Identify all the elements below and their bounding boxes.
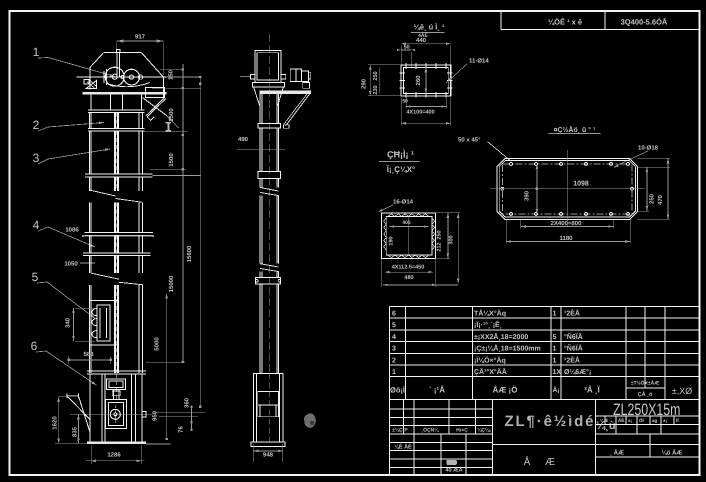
svg-text:360: 360 — [184, 397, 191, 408]
svg-text:±¼Ç¡P: ±¼Ç¡P — [392, 428, 408, 434]
svg-text:¹2ÈÅ: ¹2ÈÅ — [564, 355, 580, 364]
svg-text:ZL¶·ê½ìdé: ZL¶·ê½ìdé — [505, 413, 594, 430]
svg-text:16-Ø14: 16-Ø14 — [393, 199, 414, 206]
svg-text:¼È ÅÈ: ¼È ÅÈ — [394, 444, 412, 451]
svg-text:50 x 45°: 50 x 45° — [458, 137, 481, 144]
svg-text:±¡XX2Å¸18=2000: ±¡XX2Å¸18=2000 — [474, 332, 528, 341]
svg-text:TÅ¼X°Äq: TÅ¼X°Äq — [474, 309, 506, 318]
svg-text:10-Ø18: 10-Ø18 — [638, 145, 659, 152]
svg-text:Øö¡Ì: Øö¡Ì — [390, 386, 405, 395]
svg-text:3Q400-5.6ÓÅ: 3Q400-5.6ÓÅ — [621, 18, 668, 27]
svg-text:¡Ï¼Ö×°Äq: ¡Ï¼Ö×°Äq — [474, 356, 506, 364]
svg-text:¼Æ: ¼Æ — [600, 418, 609, 423]
svg-text:²Å ¸Ï: ²Å ¸Ï — [584, 385, 600, 395]
svg-text:1500: 1500 — [168, 153, 175, 167]
svg-text:6: 6 — [392, 311, 396, 318]
svg-text:1X: 1X — [553, 369, 562, 376]
svg-text:1098: 1098 — [573, 181, 589, 188]
svg-text:250: 250 — [649, 193, 656, 204]
svg-text:ÇÅ ¸ö: ÇÅ ¸ö — [638, 391, 653, 398]
svg-text:Å: Å — [524, 456, 531, 468]
svg-text:250: 250 — [373, 71, 379, 80]
svg-text:Ïf: Ïf — [675, 418, 679, 423]
svg-text:405: 405 — [402, 220, 411, 226]
svg-text:76: 76 — [178, 426, 185, 433]
svg-text:11-Ø14: 11-Ø14 — [469, 58, 489, 65]
svg-text:ÅÆ ¡Ö: ÅÆ ¡Ö — [493, 385, 518, 395]
svg-text:5: 5 — [32, 270, 39, 284]
svg-text:1: 1 — [553, 346, 557, 353]
svg-text:¡Ç±¡¼Å¸18=1500mm: ¡Ç±¡¼Å¸18=1500mm — [474, 344, 541, 353]
svg-text:ag: ag — [652, 418, 658, 423]
svg-text:Ï¡¸Ç¼X°: Ï¡¸Ç¼X° — [386, 165, 416, 174]
svg-text:¤Ç½Åö¸ û ° ¹: ¤Ç½Åö¸ û ° ¹ — [554, 125, 596, 134]
svg-text:490: 490 — [238, 136, 249, 143]
svg-text:190: 190 — [389, 236, 395, 245]
svg-text:6: 6 — [31, 339, 38, 353]
svg-text:2: 2 — [33, 118, 40, 132]
svg-text:°Ñ6ÏÅ: °Ñ6ÏÅ — [564, 332, 583, 341]
svg-text:40 ÆÅ: 40 ÆÅ — [445, 466, 462, 473]
svg-text:1086: 1086 — [65, 227, 79, 234]
svg-text:±T½ÖX±ÅÆ: ±T½ÖX±ÅÆ — [631, 380, 660, 387]
svg-text:290: 290 — [361, 78, 368, 89]
svg-text:15600: 15600 — [186, 245, 193, 262]
svg-text:±¡: ±¡ — [663, 418, 667, 423]
svg-text:ÇĦ¡Ì¡ ¹: ÇĦ¡Ì¡ ¹ — [387, 150, 414, 160]
svg-text:¼Ç¼¡: ¼Ç¼¡ — [477, 428, 491, 434]
svg-text:°Ñ6ÏÅ: °Ñ6ÏÅ — [564, 344, 583, 353]
svg-text:230: 230 — [373, 85, 379, 94]
svg-text:¼ÖÊ ¹ x ê: ¼ÖÊ ¹ x ê — [548, 18, 582, 27]
svg-text:15000: 15000 — [168, 275, 175, 292]
svg-text:5: 5 — [553, 334, 557, 341]
svg-text:250: 250 — [437, 230, 443, 239]
svg-text:1: 1 — [553, 357, 557, 364]
svg-text:1: 1 — [553, 311, 557, 318]
svg-text:¼ê¸ ú Ì¸ ¹: ¼ê¸ ú Ì¸ ¹ — [414, 23, 445, 32]
svg-text:¸ ÅÆ: ¸ ÅÆ — [610, 449, 624, 457]
svg-text:3: 3 — [33, 151, 40, 165]
svg-text:470: 470 — [657, 194, 664, 205]
svg-text:1286: 1286 — [107, 451, 121, 458]
svg-text:1: 1 — [392, 369, 396, 376]
svg-text:5: 5 — [392, 322, 396, 329]
svg-text:835: 835 — [72, 426, 79, 437]
svg-text:Ƕ×Ç: Ƕ×Ç — [456, 428, 468, 434]
svg-text:ÇÅ¹°X°ÄÅ: ÇÅ¹°X°ÄÅ — [474, 367, 507, 376]
svg-text:±,XØ: ±,XØ — [672, 386, 692, 396]
svg-text:4: 4 — [33, 218, 40, 232]
svg-text:340: 340 — [65, 317, 72, 328]
svg-text:4X100=400: 4X100=400 — [406, 109, 434, 115]
svg-text:1: 1 — [33, 45, 40, 59]
svg-text:2: 2 — [392, 357, 396, 364]
svg-text:440: 440 — [416, 37, 427, 44]
svg-text:Ø¼6Æ°¡: Ø¼6Æ°¡ — [564, 368, 591, 376]
svg-text:4: 4 — [392, 334, 396, 341]
svg-text:¹2ÈÅ: ¹2ÈÅ — [564, 309, 580, 318]
svg-text:948: 948 — [263, 451, 274, 458]
svg-text:150: 150 — [168, 69, 175, 80]
svg-text:´ ¡¹Å: ´ ¡¹Å — [429, 385, 445, 395]
svg-text:5000: 5000 — [154, 337, 161, 351]
svg-text:¸ÒÇǸ¼: ¸ÒÇǸ¼ — [422, 427, 440, 434]
svg-text:260: 260 — [415, 75, 422, 86]
svg-text:3: 3 — [392, 346, 396, 353]
svg-text:1050: 1050 — [64, 261, 78, 268]
svg-text:4X112.5=450: 4X112.5=450 — [392, 265, 425, 271]
svg-text:Å¡: Å¡ — [553, 386, 560, 394]
svg-text:ÖÌ: ÖÌ — [639, 418, 645, 423]
svg-text:¼ö ÅÆ: ¼ö ÅÆ — [662, 449, 683, 457]
svg-text:390: 390 — [524, 190, 531, 201]
svg-text:1500: 1500 — [168, 108, 175, 122]
svg-text:ÅÈ: ÅÈ — [618, 418, 624, 423]
svg-text:950: 950 — [152, 410, 159, 421]
svg-text:480: 480 — [404, 275, 413, 281]
svg-text:1620: 1620 — [52, 416, 59, 430]
svg-text:¡Ï¡·¹°¸´¡Ê¸: ¡Ï¡·¹°¸´¡Ê¸ — [474, 320, 502, 329]
svg-text:212: 212 — [437, 242, 443, 251]
svg-text:300: 300 — [449, 235, 455, 244]
svg-text:Æ: Æ — [545, 457, 555, 468]
svg-text:50: 50 — [402, 99, 408, 105]
svg-text:±¡: ±¡ — [628, 418, 632, 423]
svg-text:588: 588 — [83, 351, 94, 358]
svg-text:917: 917 — [135, 34, 146, 41]
